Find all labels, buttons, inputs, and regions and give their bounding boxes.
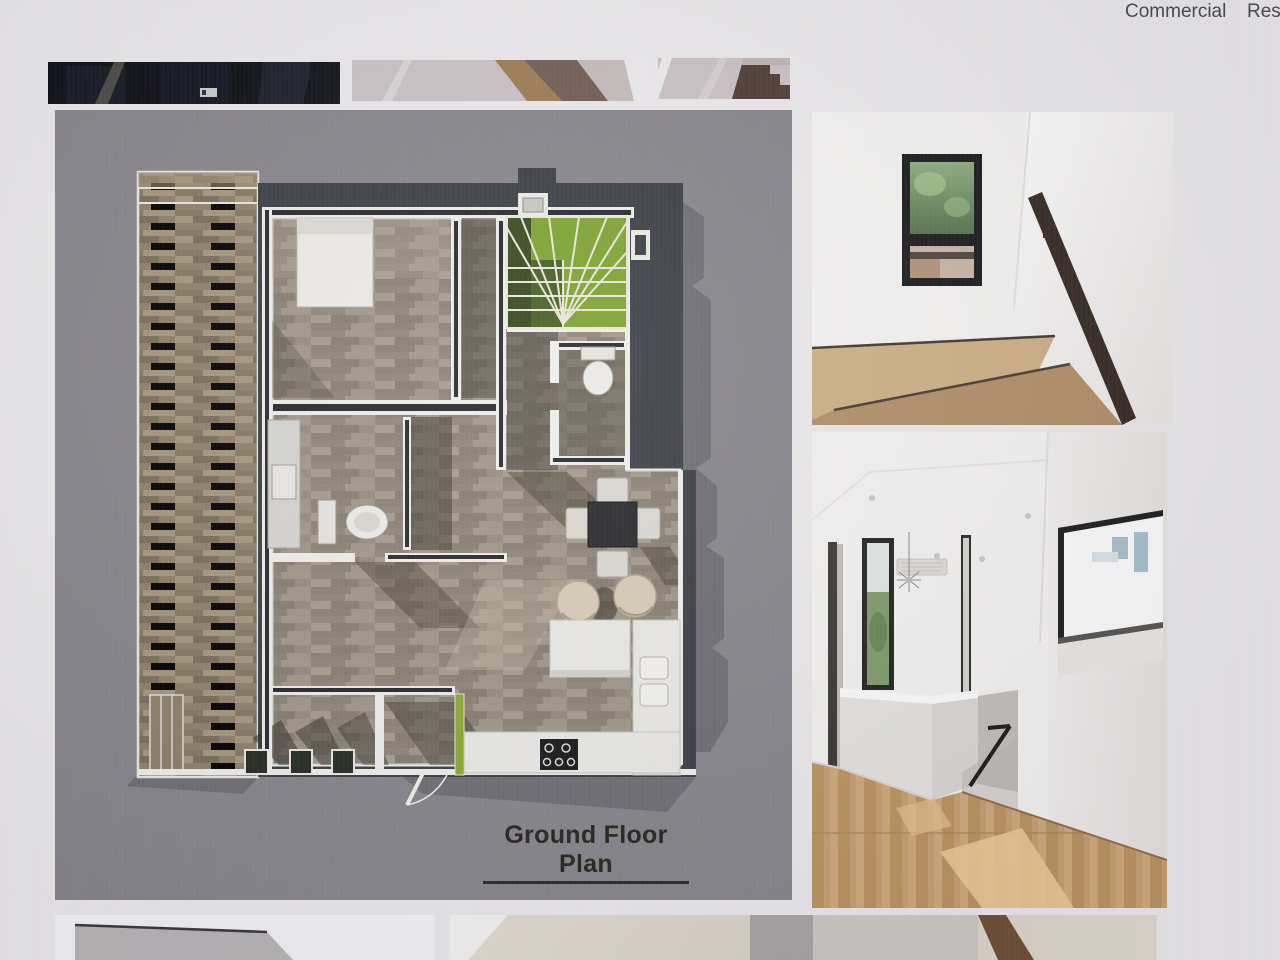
gallery-thumbnail-hallway-stair[interactable] bbox=[352, 60, 650, 101]
photo-stair-landing-window[interactable] bbox=[812, 112, 1173, 425]
photoB-hvac-vent bbox=[897, 559, 947, 575]
plan-staircase bbox=[507, 217, 627, 328]
photoB-tall-window bbox=[862, 538, 894, 690]
photo-beige-interior-detail-cropped[interactable] bbox=[450, 915, 1157, 960]
photoA-window bbox=[902, 154, 982, 286]
browser-viewport: Commercial Res bbox=[0, 0, 1280, 960]
plan-deck bbox=[138, 172, 258, 777]
plan-side-window bbox=[631, 230, 650, 260]
gallery-thumbnail-dark-interior[interactable] bbox=[48, 62, 340, 104]
plan-cooktop bbox=[540, 739, 578, 770]
nav-item-residential-cropped[interactable]: Res bbox=[1247, 1, 1280, 23]
photoB-door-edge bbox=[828, 542, 837, 772]
plan-skylight-window bbox=[518, 193, 548, 217]
floor-plan-image[interactable]: Ground Floor Plan bbox=[55, 110, 792, 900]
photo-upstairs-hallway[interactable] bbox=[812, 432, 1167, 908]
nav-item-commercial[interactable]: Commercial bbox=[1125, 1, 1226, 23]
floor-plan-title: Ground Floor Plan bbox=[483, 821, 689, 884]
plan-green-accent-wall bbox=[455, 694, 464, 775]
plan-entry-step-pads bbox=[245, 750, 354, 774]
bottomR-light-wall bbox=[813, 915, 978, 960]
photoB-right-window bbox=[1058, 510, 1163, 676]
plan-deck-planter-fence bbox=[150, 695, 183, 773]
plan-bed bbox=[297, 218, 373, 307]
plan-kitchen-island bbox=[550, 620, 630, 677]
bottomR-gray-band bbox=[750, 915, 813, 960]
plan-powder-room-toilet bbox=[581, 347, 615, 395]
stair-steps-thumbnail-image bbox=[658, 58, 790, 99]
hallway-stair-thumbnail-image bbox=[352, 60, 650, 101]
dark-interior-thumbnail-image bbox=[48, 62, 340, 104]
gallery-thumbnail-stair-steps[interactable] bbox=[658, 58, 790, 99]
photo-gray-wall-detail-cropped[interactable] bbox=[55, 915, 435, 960]
